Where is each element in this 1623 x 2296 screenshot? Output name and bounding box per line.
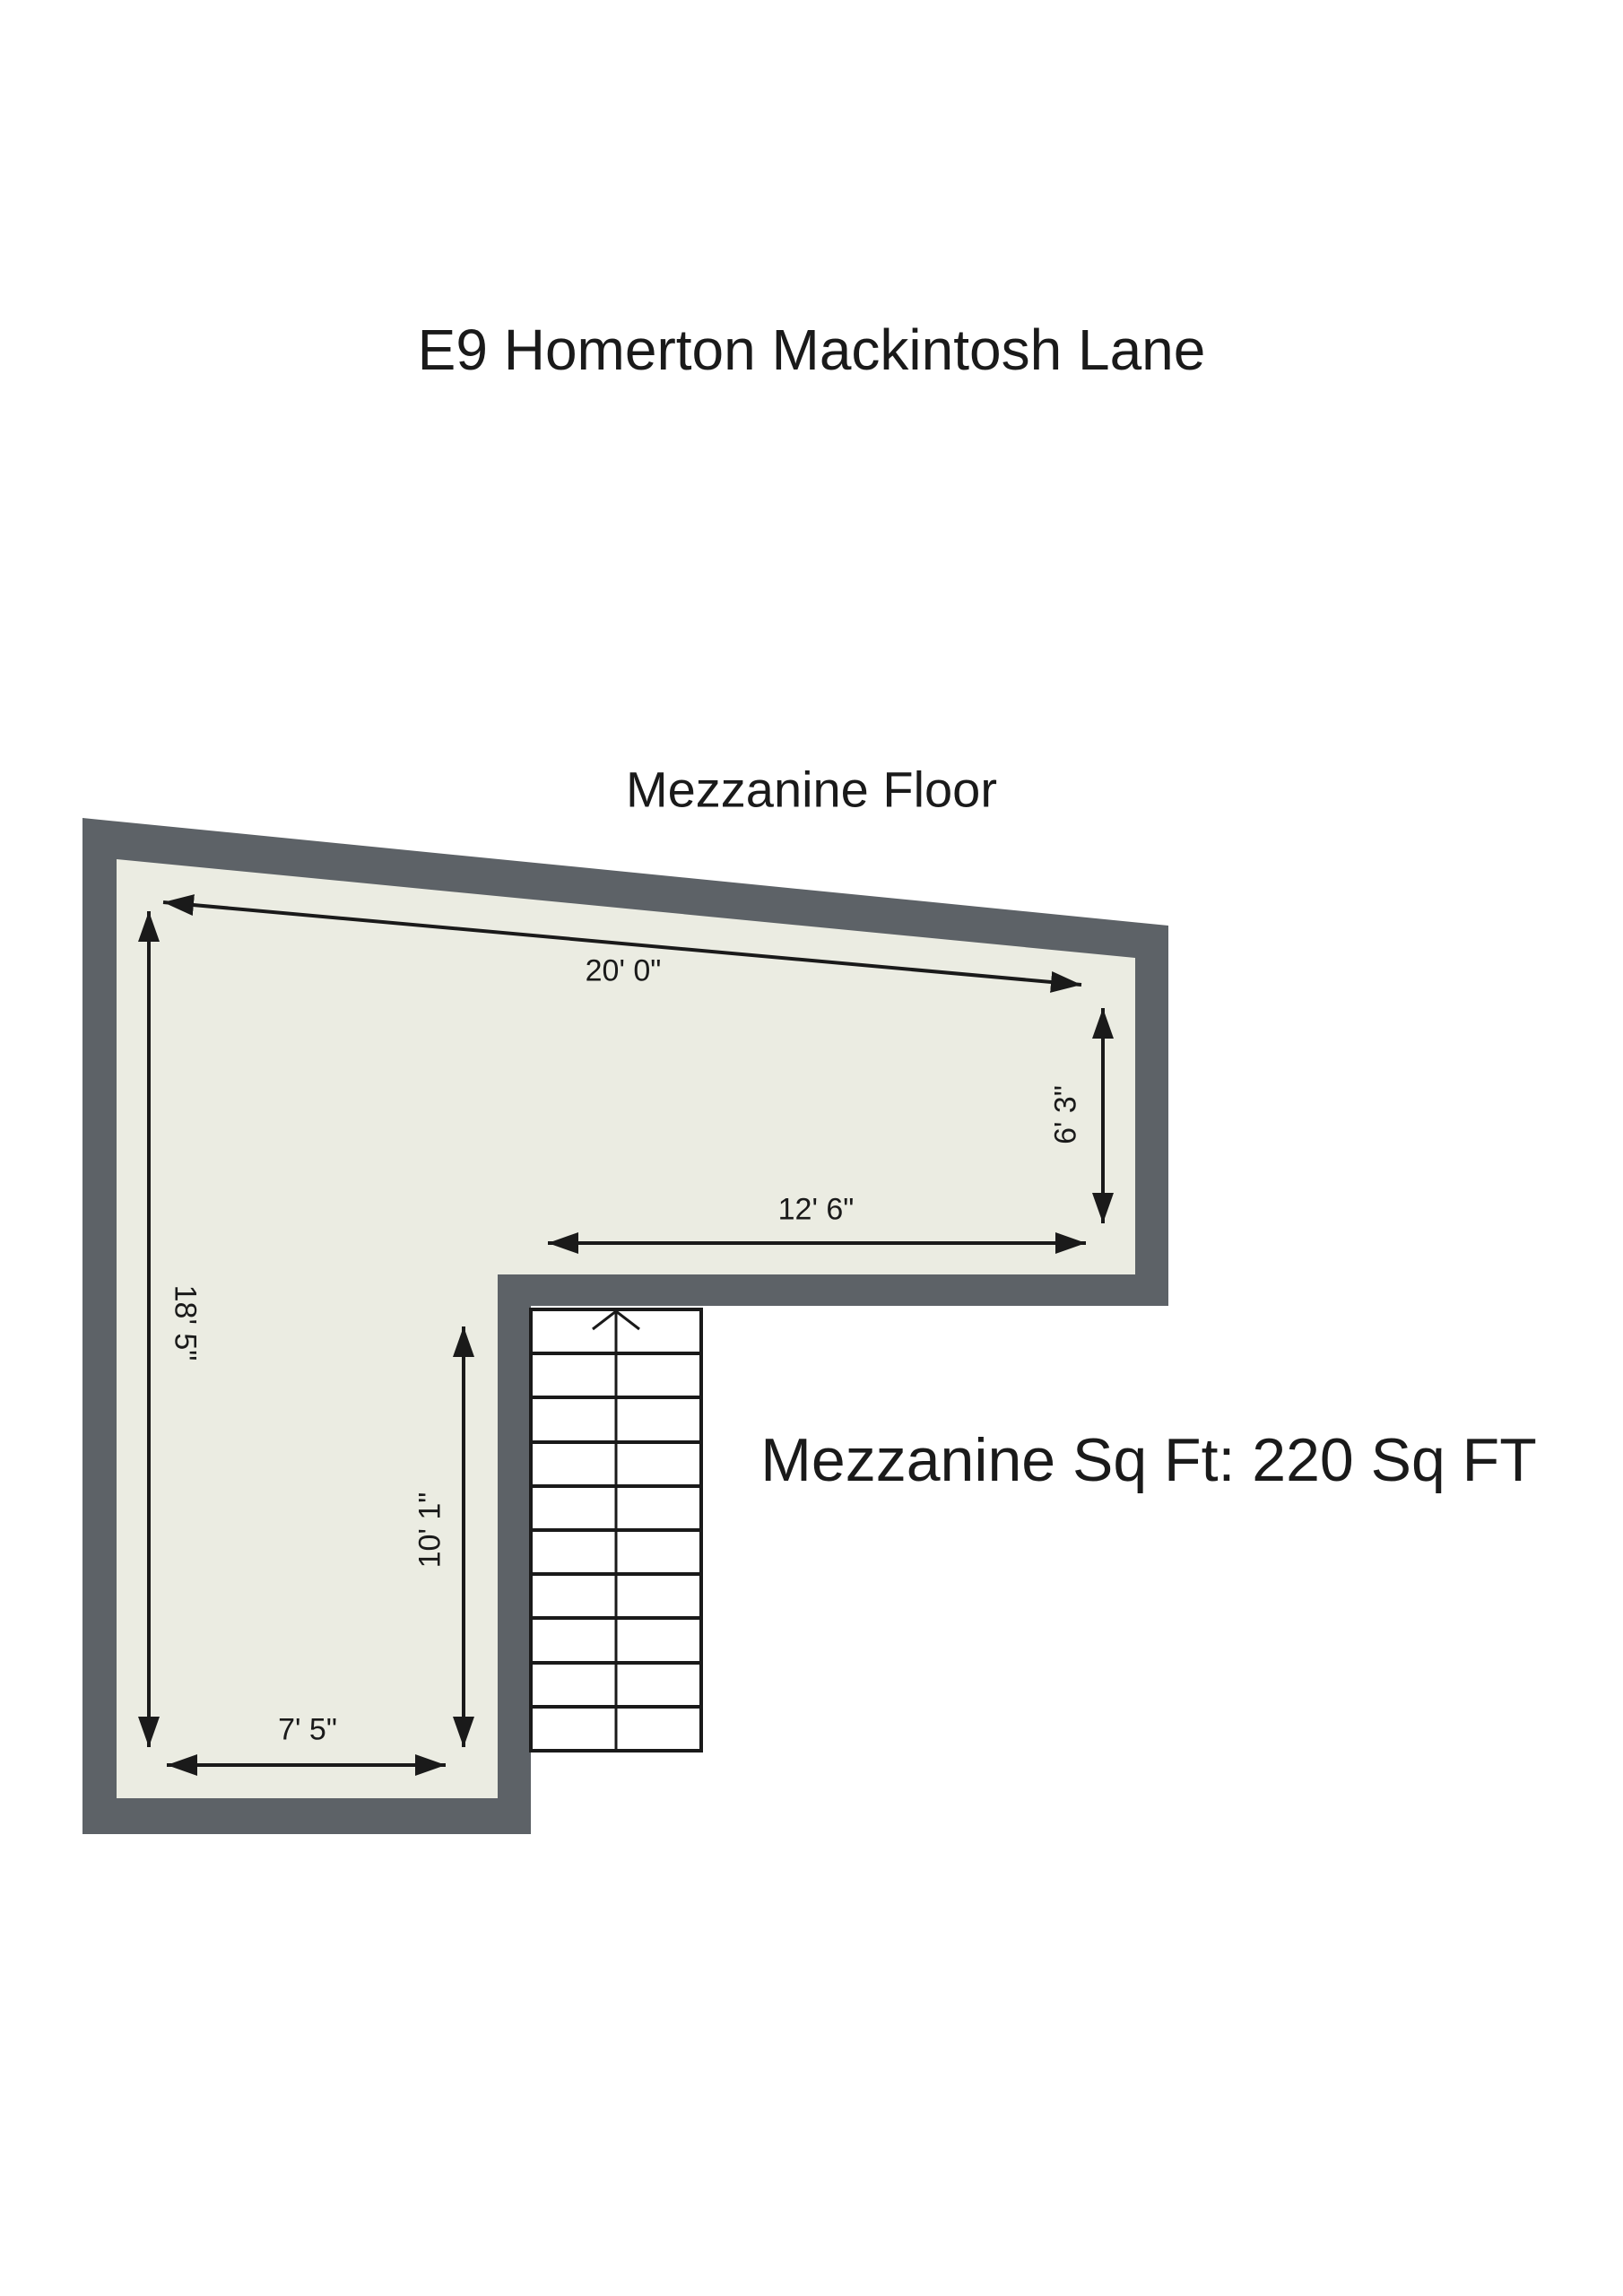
dimension-label-left-height: 18' 5": [168, 1285, 203, 1361]
dimension-label-top-width: 20' 0": [586, 954, 662, 989]
floorplan-page: E9 Homerton Mackintosh Lane Mezzanine Fl…: [0, 0, 1623, 2296]
floorplan-drawing: [0, 0, 1623, 2296]
dimension-label-middle-width: 12' 6": [778, 1193, 855, 1228]
dimension-label-inner-left-height: 10' 1": [413, 1492, 448, 1569]
dimension-label-right-height: 6' 3": [1049, 1085, 1084, 1144]
stairs: [531, 1309, 701, 1751]
dimension-label-bottom-width: 7' 5": [278, 1713, 337, 1748]
